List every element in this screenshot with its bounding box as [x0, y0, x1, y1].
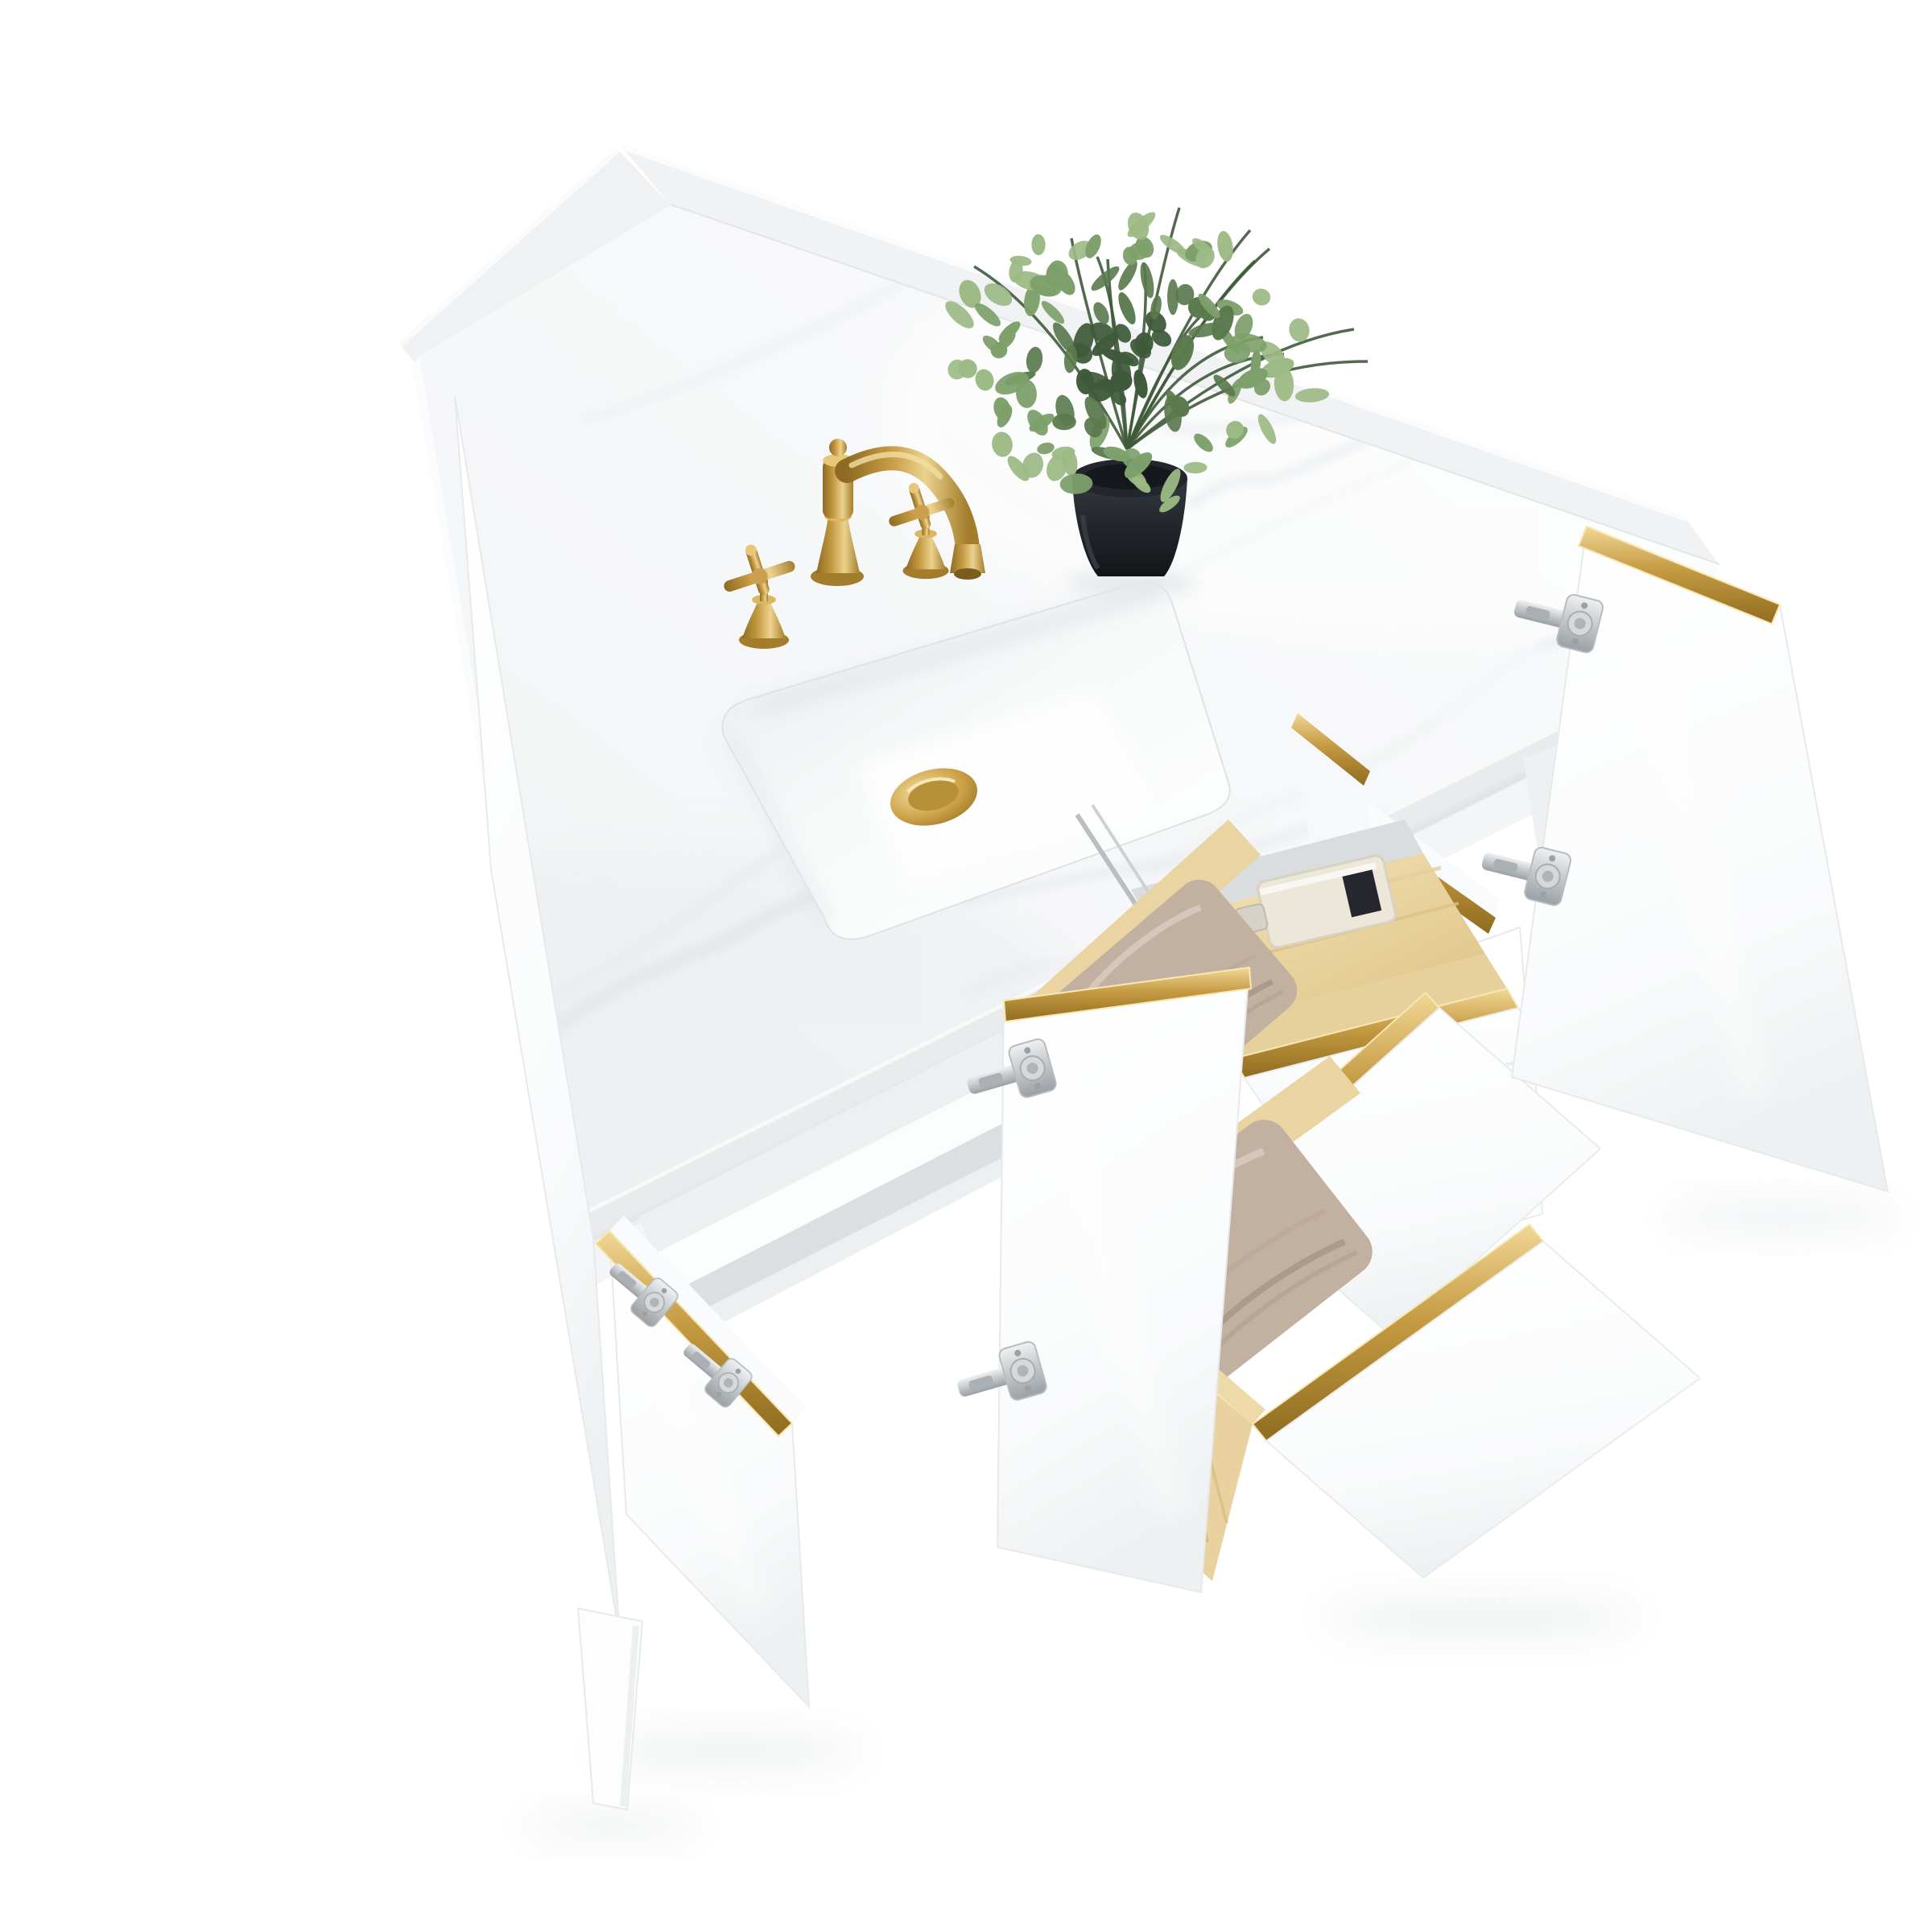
plant-leaf [1031, 234, 1046, 255]
drawer-shadow [1320, 1597, 1642, 1639]
vanity-scene [0, 0, 1932, 1932]
spout-finial [829, 439, 847, 456]
plant-leaf [1052, 414, 1076, 431]
plant-leaf [1250, 287, 1273, 308]
right-door-shadow [1662, 1199, 1904, 1235]
leg-shadow [523, 1811, 700, 1840]
marble-vein [1302, 188, 1646, 361]
plant-leaf [1216, 230, 1236, 263]
plant-leaf [1137, 261, 1156, 299]
plant-leaf [1088, 263, 1123, 295]
plant-leaf [1158, 232, 1189, 258]
product-photo-vanity [0, 0, 1932, 1932]
